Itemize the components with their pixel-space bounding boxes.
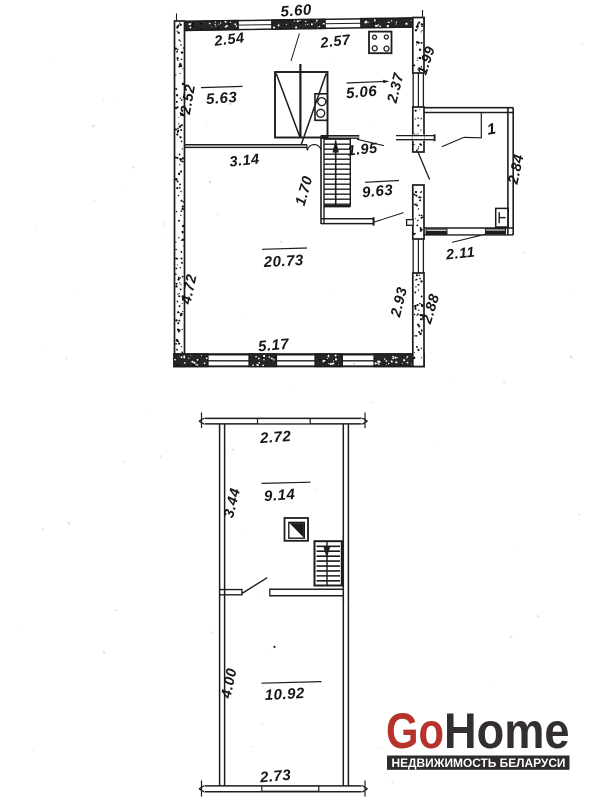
svg-text:9.14: 9.14 bbox=[264, 486, 296, 505]
svg-text:3.14: 3.14 bbox=[229, 151, 261, 170]
svg-text:5.17: 5.17 bbox=[257, 336, 290, 356]
svg-text:1.95: 1.95 bbox=[347, 140, 379, 159]
svg-text:5.06: 5.06 bbox=[345, 83, 378, 103]
svg-text:Go: Go bbox=[386, 702, 444, 759]
svg-text:2.72: 2.72 bbox=[259, 428, 292, 447]
svg-text:10.92: 10.92 bbox=[264, 685, 305, 704]
svg-text:НЕДВИЖИМОСТЬ БЕЛАРУСИ: НЕДВИЖИМОСТЬ БЕЛАРУСИ bbox=[392, 756, 566, 770]
svg-text:5.60: 5.60 bbox=[280, 1, 312, 20]
svg-text:5.63: 5.63 bbox=[206, 89, 238, 108]
svg-text:20.73: 20.73 bbox=[262, 252, 304, 271]
svg-text:Home: Home bbox=[444, 702, 570, 759]
svg-text:2.73: 2.73 bbox=[258, 767, 292, 787]
svg-text:2.11: 2.11 bbox=[444, 245, 476, 264]
svg-text:9.63: 9.63 bbox=[361, 182, 394, 202]
